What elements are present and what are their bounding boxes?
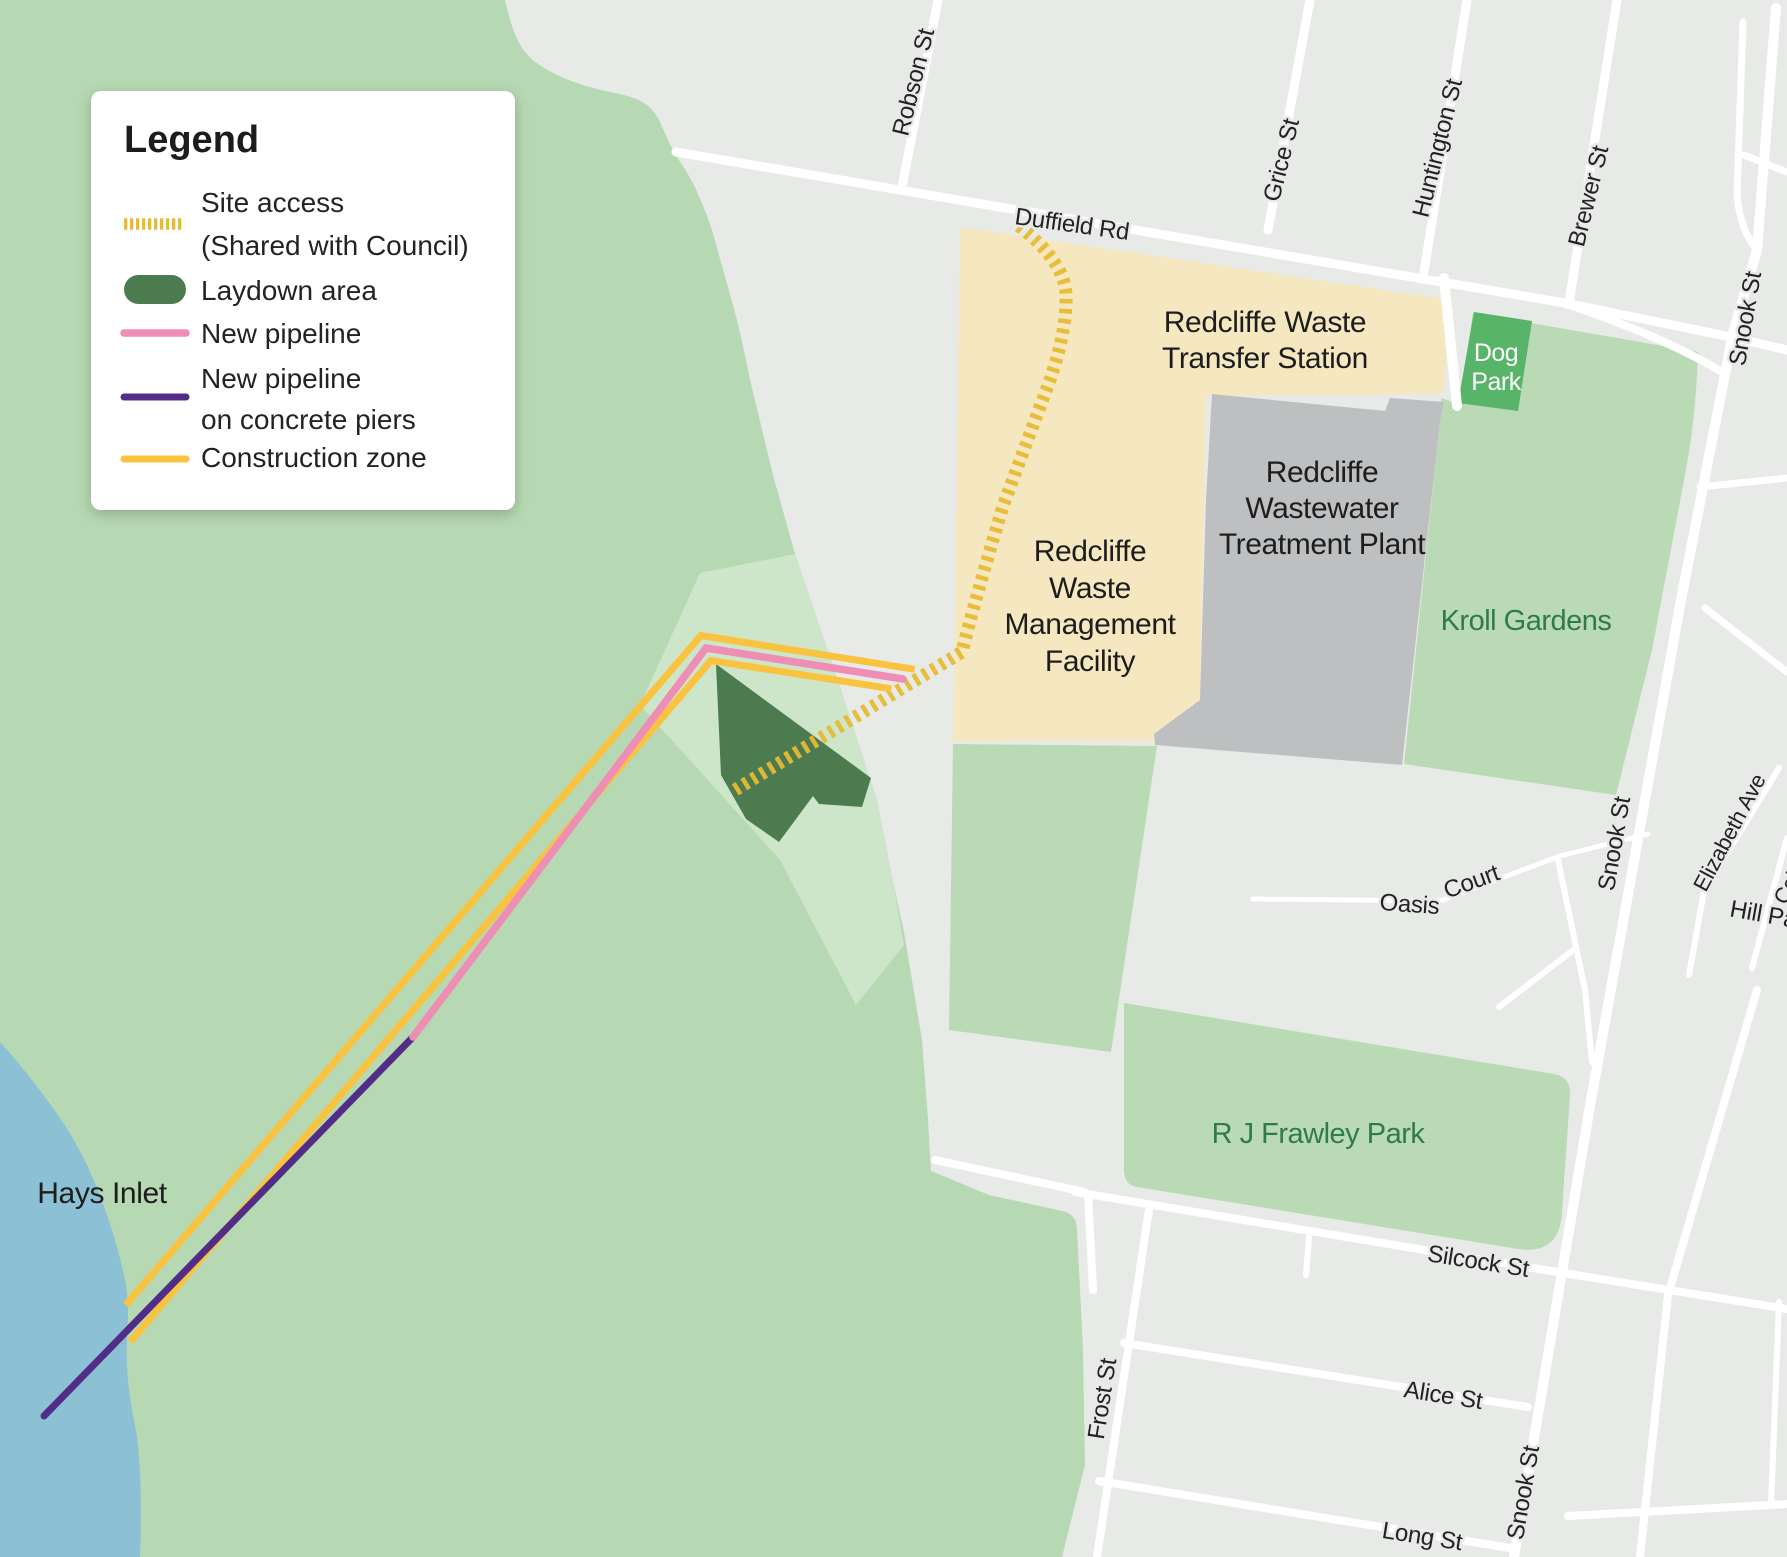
svg-text:New pipeline: New pipeline bbox=[201, 363, 361, 394]
svg-text:Waste: Waste bbox=[1049, 572, 1131, 605]
svg-text:Dog: Dog bbox=[1474, 339, 1518, 367]
svg-text:Site access: Site access bbox=[201, 187, 344, 218]
svg-text:Treatment Plant: Treatment Plant bbox=[1219, 528, 1426, 561]
svg-text:Transfer Station: Transfer Station bbox=[1162, 342, 1368, 375]
svg-text:on concrete piers: on concrete piers bbox=[201, 404, 416, 435]
svg-text:Redcliffe: Redcliffe bbox=[1034, 535, 1147, 568]
svg-text:Oasis: Oasis bbox=[1379, 889, 1441, 920]
svg-text:(Shared with Council): (Shared with Council) bbox=[201, 230, 469, 261]
svg-text:Redcliffe: Redcliffe bbox=[1266, 456, 1379, 489]
svg-text:Laydown area: Laydown area bbox=[201, 275, 377, 306]
svg-text:Kroll Gardens: Kroll Gardens bbox=[1441, 605, 1612, 637]
svg-text:New pipeline: New pipeline bbox=[201, 318, 361, 349]
svg-text:R J Frawley Park: R J Frawley Park bbox=[1212, 1118, 1426, 1150]
svg-text:Facility: Facility bbox=[1045, 645, 1136, 678]
svg-text:Redcliffe Waste: Redcliffe Waste bbox=[1164, 306, 1366, 339]
svg-text:Park: Park bbox=[1471, 368, 1521, 396]
svg-text:Construction zone: Construction zone bbox=[201, 442, 427, 473]
svg-text:Hays Inlet: Hays Inlet bbox=[37, 1177, 167, 1210]
svg-text:Wastewater: Wastewater bbox=[1245, 492, 1399, 525]
svg-text:Legend: Legend bbox=[124, 119, 259, 161]
svg-text:Management: Management bbox=[1004, 608, 1176, 641]
